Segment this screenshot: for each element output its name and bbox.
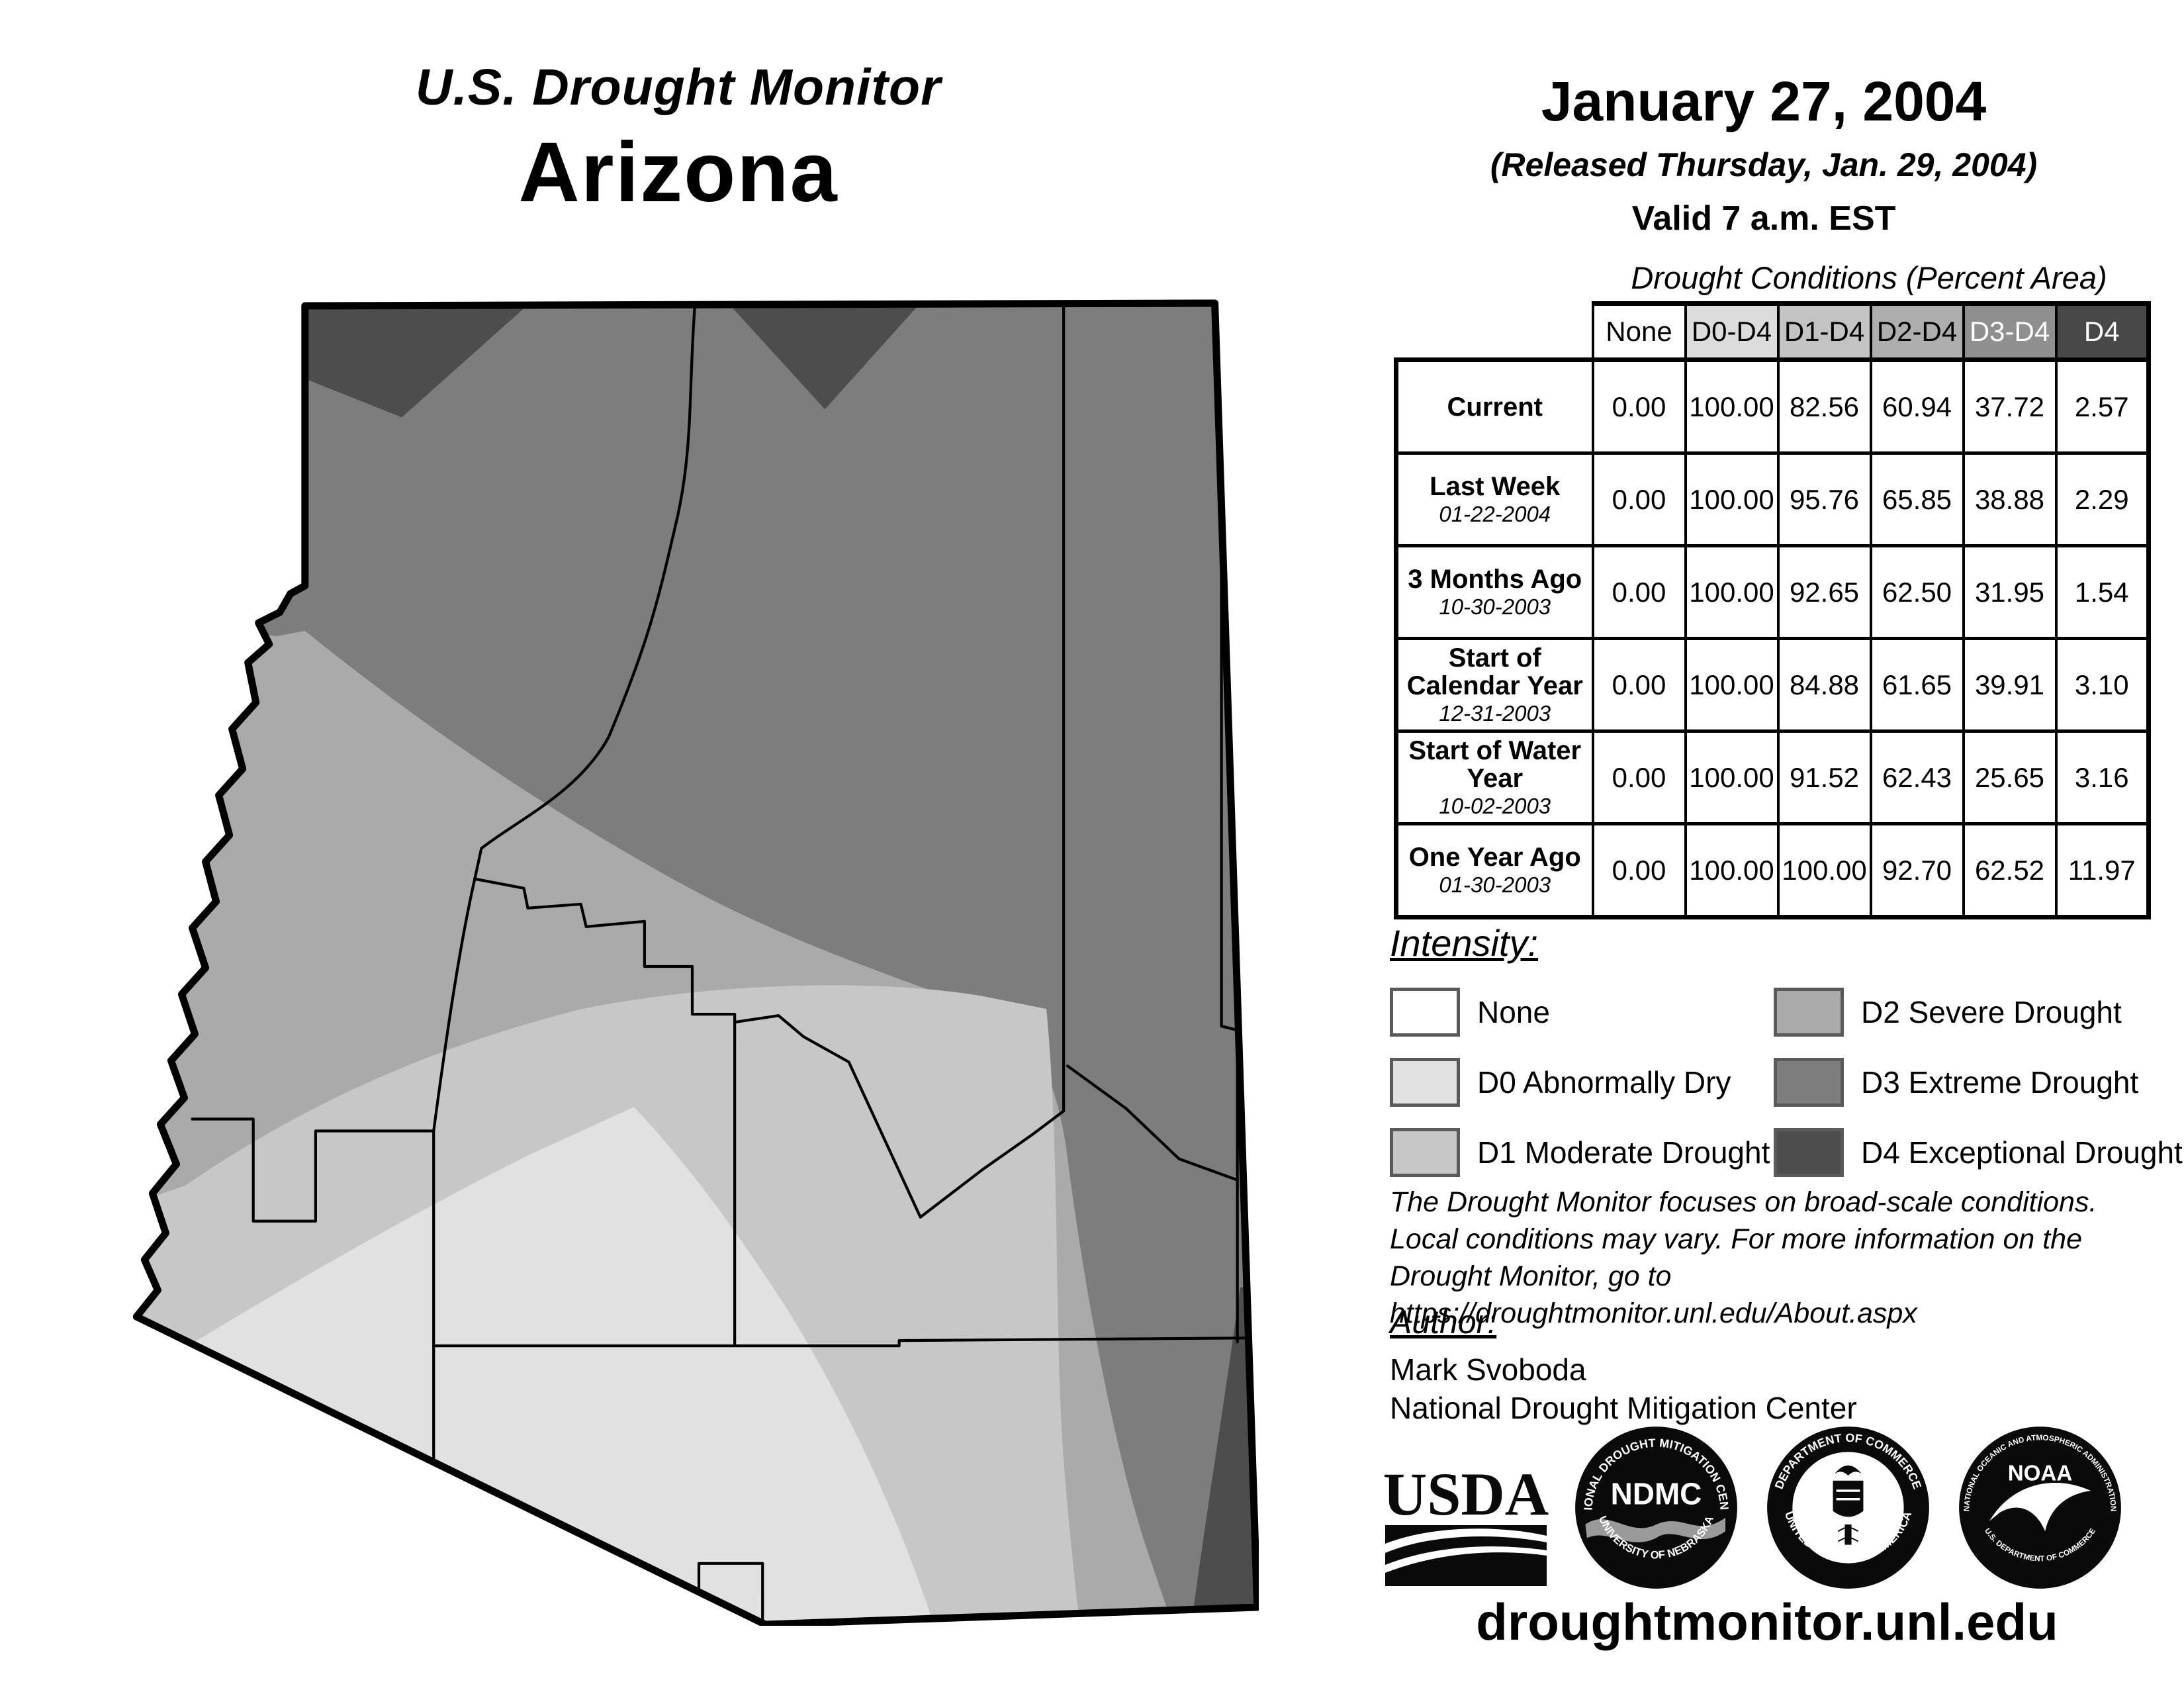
cell-value: 1.54 [2056,546,2149,639]
cell-value: 100.00 [1686,546,1778,639]
cell-value: 0.00 [1593,360,1686,453]
col-header-d4: D4 [2056,304,2149,360]
disclaimer-line: The Drought Monitor focuses on broad-sca… [1390,1184,2184,1221]
table-row: Current 0.00 100.00 82.56 60.94 37.72 2.… [1396,360,2149,453]
col-header-none: None [1593,304,1686,360]
legend-swatch-d4 [1774,1128,1844,1177]
legend-swatch-none [1390,988,1460,1037]
cell-value: 37.72 [1964,360,2056,453]
col-header-d1-d4: D1-D4 [1778,304,1871,360]
table-corner-cell [1396,304,1593,360]
department-of-commerce-seal: DEPARTMENT OF COMMERCE UNITED STATES OF … [1764,1423,1933,1592]
legend-label-d4: D4 Exceptional Drought [1861,1128,2183,1177]
cell-value: 100.00 [1686,360,1778,453]
row-label: Start of Calendar Year [1404,644,1586,700]
table-header-row: None D0-D4 D1-D4 D2-D4 D3-D4 D4 [1396,304,2149,360]
doc-lighthouse-icon [1844,1524,1851,1545]
cell-value: 0.00 [1593,824,1686,917]
legend-swatch-d2 [1774,988,1844,1037]
released-date: (Released Thursday, Jan. 29, 2004) [1423,146,2105,184]
legend-label-d3: D3 Extreme Drought [1861,1058,2138,1107]
cell-value: 95.76 [1778,453,1871,546]
row-label: Start of Water Year [1404,737,1586,792]
table-row: Start of Water Year 10-02-2003 0.00 100.… [1396,731,2149,824]
row-date: 01-30-2003 [1404,874,1586,897]
cell-value: 100.00 [1686,639,1778,731]
table-row: Start of Calendar Year 12-31-2003 0.00 1… [1396,639,2149,731]
cell-value: 61.65 [1871,639,1964,731]
legend-heading: Intensity: [1390,921,1538,964]
row-date: 10-30-2003 [1404,596,1586,619]
cell-value: 2.29 [2056,453,2149,546]
col-header-d3-d4: D3-D4 [1964,304,2056,360]
row-label: 3 Months Ago [1404,565,1586,593]
row-label: Last Week [1404,473,1586,500]
date-header-block: January 27, 2004 (Released Thursday, Jan… [1423,70,2105,238]
legend-label-d1: D1 Moderate Drought [1477,1128,1770,1177]
cell-value: 60.94 [1871,360,1964,453]
cell-value: 62.50 [1871,546,1964,639]
author-heading: Author: [1390,1303,1496,1341]
cell-value: 0.00 [1593,731,1686,824]
cell-value: 0.00 [1593,546,1686,639]
ndmc-center-text: NDMC [1611,1476,1702,1511]
drought-conditions-table: None D0-D4 D1-D4 D2-D4 D3-D4 D4 Current … [1394,301,2151,919]
cell-value: 3.10 [2056,639,2149,731]
cell-value: 100.00 [1778,824,1871,917]
cell-value: 82.56 [1778,360,1871,453]
legend-swatch-d0 [1390,1058,1460,1107]
cell-value: 11.97 [2056,824,2149,917]
noaa-center-text: NOAA [2008,1462,2073,1486]
cell-value: 100.00 [1686,824,1778,917]
disclaimer-line: Local conditions may vary. For more info… [1390,1221,2184,1258]
cell-value: 92.65 [1778,546,1871,639]
author-name: Mark Svoboda [1390,1352,1586,1387]
cell-value: 2.57 [2056,360,2149,453]
ndmc-logo: NATIONAL DROUGHT MITIGATION CENTER NDMC … [1572,1423,1741,1592]
cell-value: 62.52 [1964,824,2056,917]
cell-value: 38.88 [1964,453,2056,546]
legend-label-none: None [1477,988,1550,1037]
cell-value: 0.00 [1593,639,1686,731]
col-header-d0-d4: D0-D4 [1686,304,1778,360]
row-date: 10-02-2003 [1404,795,1586,818]
cell-value: 31.95 [1964,546,2056,639]
cell-value: 100.00 [1686,731,1778,824]
legend-label-d2: D2 Severe Drought [1861,988,2122,1037]
cell-value: 65.85 [1871,453,1964,546]
valid-time: Valid 7 a.m. EST [1423,199,2105,238]
noaa-logo: NATIONAL OCEANIC AND ATMOSPHERIC ADMINIS… [1956,1423,2124,1592]
state-name: Arizona [199,124,1158,221]
disclaimer-text: The Drought Monitor focuses on broad-sca… [1390,1184,2184,1332]
footer-url: droughtmonitor.unl.edu [1377,1592,2158,1652]
cell-value: 0.00 [1593,453,1686,546]
cell-value: 3.16 [2056,731,2149,824]
disclaimer-line: Drought Monitor, go to https://droughtmo… [1390,1258,2184,1332]
row-label: Current [1404,393,1586,421]
cell-value: 39.91 [1964,639,2056,731]
cell-value: 91.52 [1778,731,1871,824]
usda-logo: USDA [1380,1456,1552,1589]
legend-swatch-d3 [1774,1058,1844,1107]
table-row: Last Week 01-22-2004 0.00 100.00 95.76 6… [1396,453,2149,546]
legend-label-d0: D0 Abnormally Dry [1477,1058,1731,1107]
map-title-block: U.S. Drought Monitor Arizona [199,58,1158,221]
col-header-d2-d4: D2-D4 [1871,304,1964,360]
row-date: 01-22-2004 [1404,503,1586,526]
table-title: Drought Conditions (Percent Area) [1590,259,2148,296]
usda-logo-text: USDA [1383,1460,1549,1528]
cell-value: 92.70 [1871,824,1964,917]
arizona-drought-map [118,299,1259,1626]
row-date: 12-31-2003 [1404,702,1586,726]
cell-value: 25.65 [1964,731,2056,824]
table-row: One Year Ago 01-30-2003 0.00 100.00 100.… [1396,824,2149,917]
table-row: 3 Months Ago 10-30-2003 0.00 100.00 92.6… [1396,546,2149,639]
us-drought-monitor-title: U.S. Drought Monitor [199,58,1158,117]
legend-swatch-d1 [1390,1128,1460,1177]
map-date: January 27, 2004 [1423,70,2105,134]
cell-value: 84.88 [1778,639,1871,731]
cell-value: 100.00 [1686,453,1778,546]
cell-value: 62.43 [1871,731,1964,824]
author-organization: National Drought Mitigation Center [1390,1390,1857,1426]
row-label: One Year Ago [1404,843,1586,871]
